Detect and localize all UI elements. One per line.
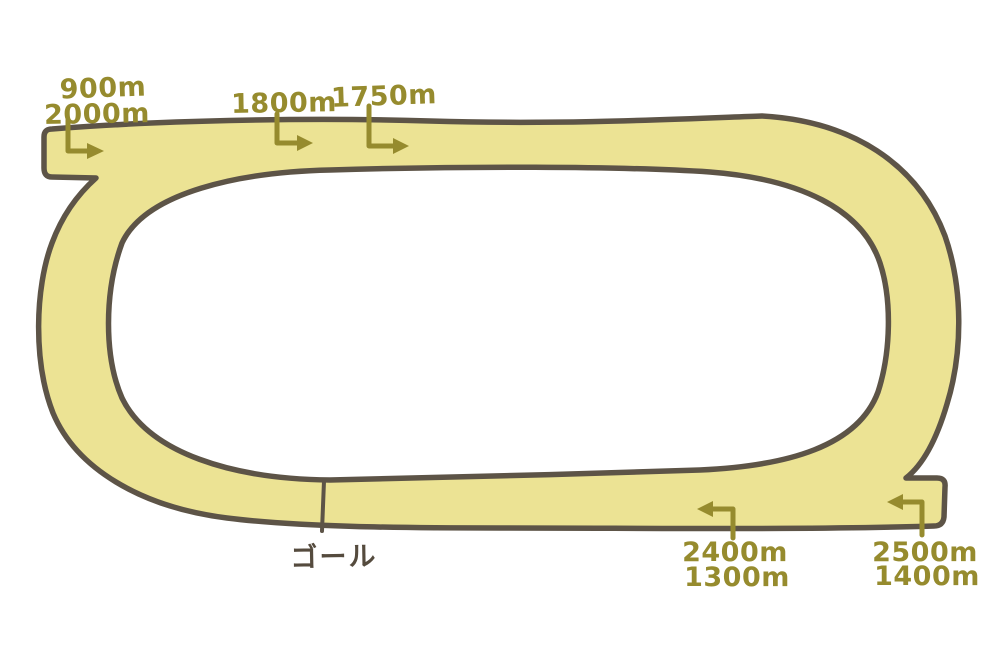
label-1400m: 1400m (874, 561, 980, 592)
racecourse-diagram: 900m 2000m 1800m 1750m 2400m 1300m 2500m… (0, 0, 1000, 650)
label-1800m: 1800m (231, 87, 337, 120)
track-layer (39, 116, 959, 531)
label-2000m: 2000m (44, 98, 150, 131)
label-1750m: 1750m (331, 79, 438, 114)
label-1300m: 1300m (684, 562, 790, 593)
goal-line (322, 481, 324, 531)
racecourse-diagram-page: 900m 2000m 1800m 1750m 2400m 1300m 2500m… (0, 0, 1000, 650)
goal-label: ゴール (290, 540, 378, 574)
track-surface (39, 116, 959, 529)
